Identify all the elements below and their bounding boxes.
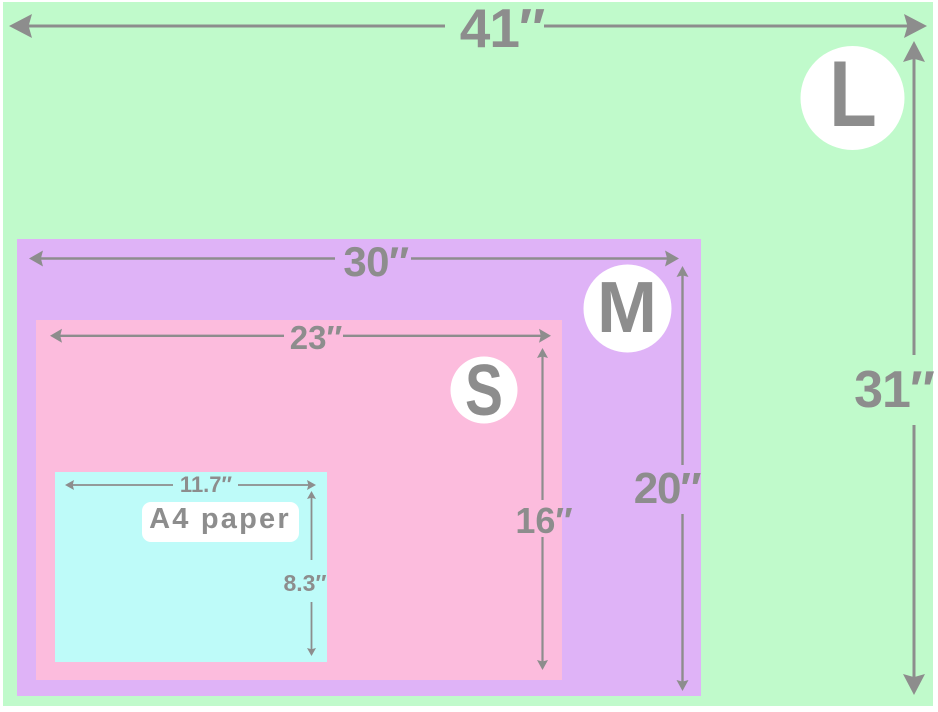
svg-text:8.3″: 8.3″ [284,570,327,596]
svg-text:16″: 16″ [515,500,572,541]
svg-text:41″: 41″ [460,0,545,59]
svg-text:30″: 30″ [343,238,409,285]
svg-text:L: L [829,42,877,146]
svg-text:31″: 31″ [854,361,934,419]
svg-text:11.7″: 11.7″ [180,472,233,497]
svg-text:23″: 23″ [290,319,343,356]
svg-text:20″: 20″ [634,464,702,513]
svg-text:M: M [597,268,657,348]
svg-text:A4 paper: A4 paper [149,503,291,535]
svg-text:S: S [465,350,503,431]
